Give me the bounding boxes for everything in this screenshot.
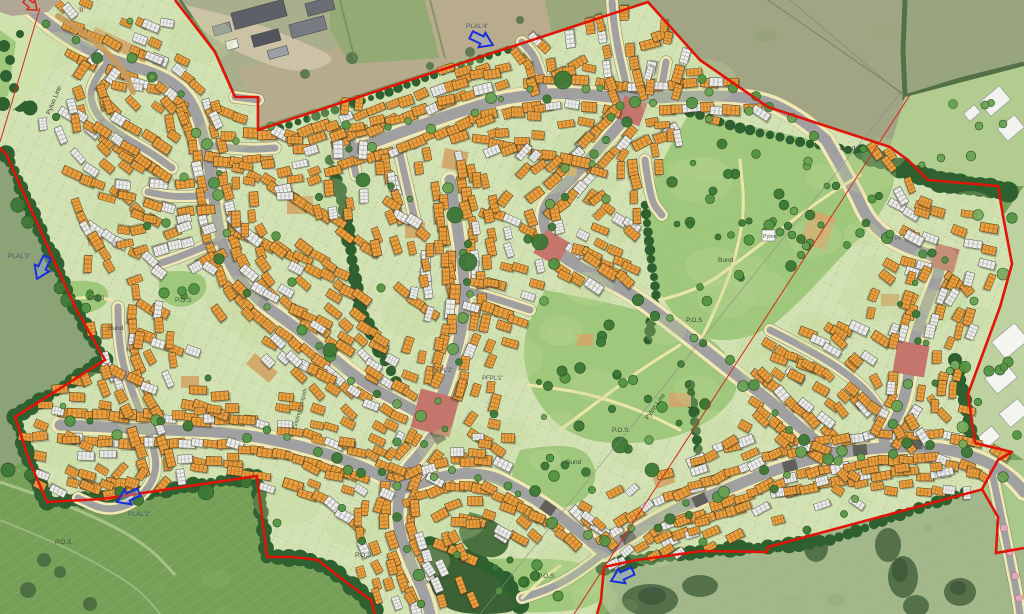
- svg-text:P.O.S: P.O.S: [686, 317, 703, 324]
- svg-text:Bund: Bund: [840, 145, 856, 152]
- svg-text:P.O.S: P.O.S: [175, 297, 192, 304]
- svg-text:PLAL'4': PLAL'4': [466, 23, 488, 30]
- svg-text:P.O.S: P.O.S: [88, 295, 105, 302]
- svg-text:PFPL'1': PFPL'1': [482, 376, 503, 382]
- svg-text:P.O.S: P.O.S: [355, 552, 372, 559]
- svg-text:PFPL'2': PFPL'2': [432, 368, 453, 374]
- svg-text:Bund: Bund: [566, 459, 582, 466]
- svg-text:Pylon: Pylon: [763, 234, 777, 240]
- svg-text:P.O.S: P.O.S: [55, 539, 72, 546]
- svg-text:PF: PF: [895, 236, 903, 242]
- svg-text:P.O.S: P.O.S: [538, 573, 555, 580]
- svg-text:Bund: Bund: [108, 325, 124, 332]
- svg-text:Bund: Bund: [718, 257, 734, 264]
- svg-text:'B': 'B': [78, 7, 85, 14]
- svg-text:P.O.S.: P.O.S.: [612, 427, 631, 434]
- svg-text:PLAL'2': PLAL'2': [128, 511, 150, 518]
- svg-text:PLAL'1': PLAL'1': [645, 587, 667, 594]
- svg-text:PLAL'3': PLAL'3': [8, 253, 30, 260]
